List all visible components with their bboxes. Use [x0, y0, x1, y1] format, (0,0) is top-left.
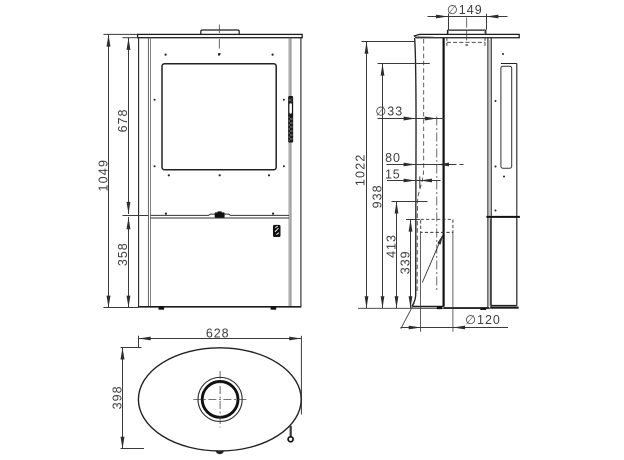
svg-text:678: 678 [116, 109, 130, 133]
svg-text:938: 938 [371, 184, 385, 208]
svg-text:80: 80 [385, 151, 401, 165]
svg-text:∅33: ∅33 [375, 104, 403, 118]
svg-text:358: 358 [116, 242, 130, 266]
svg-text:413: 413 [385, 234, 399, 258]
svg-text:398: 398 [111, 385, 125, 409]
svg-text:∅149: ∅149 [447, 3, 483, 17]
svg-text:628: 628 [206, 327, 230, 341]
svg-text:∅120: ∅120 [465, 313, 501, 327]
svg-text:15: 15 [385, 168, 401, 182]
svg-text:1049: 1049 [97, 159, 111, 192]
svg-text:339: 339 [399, 250, 413, 274]
svg-text:1022: 1022 [354, 153, 368, 186]
